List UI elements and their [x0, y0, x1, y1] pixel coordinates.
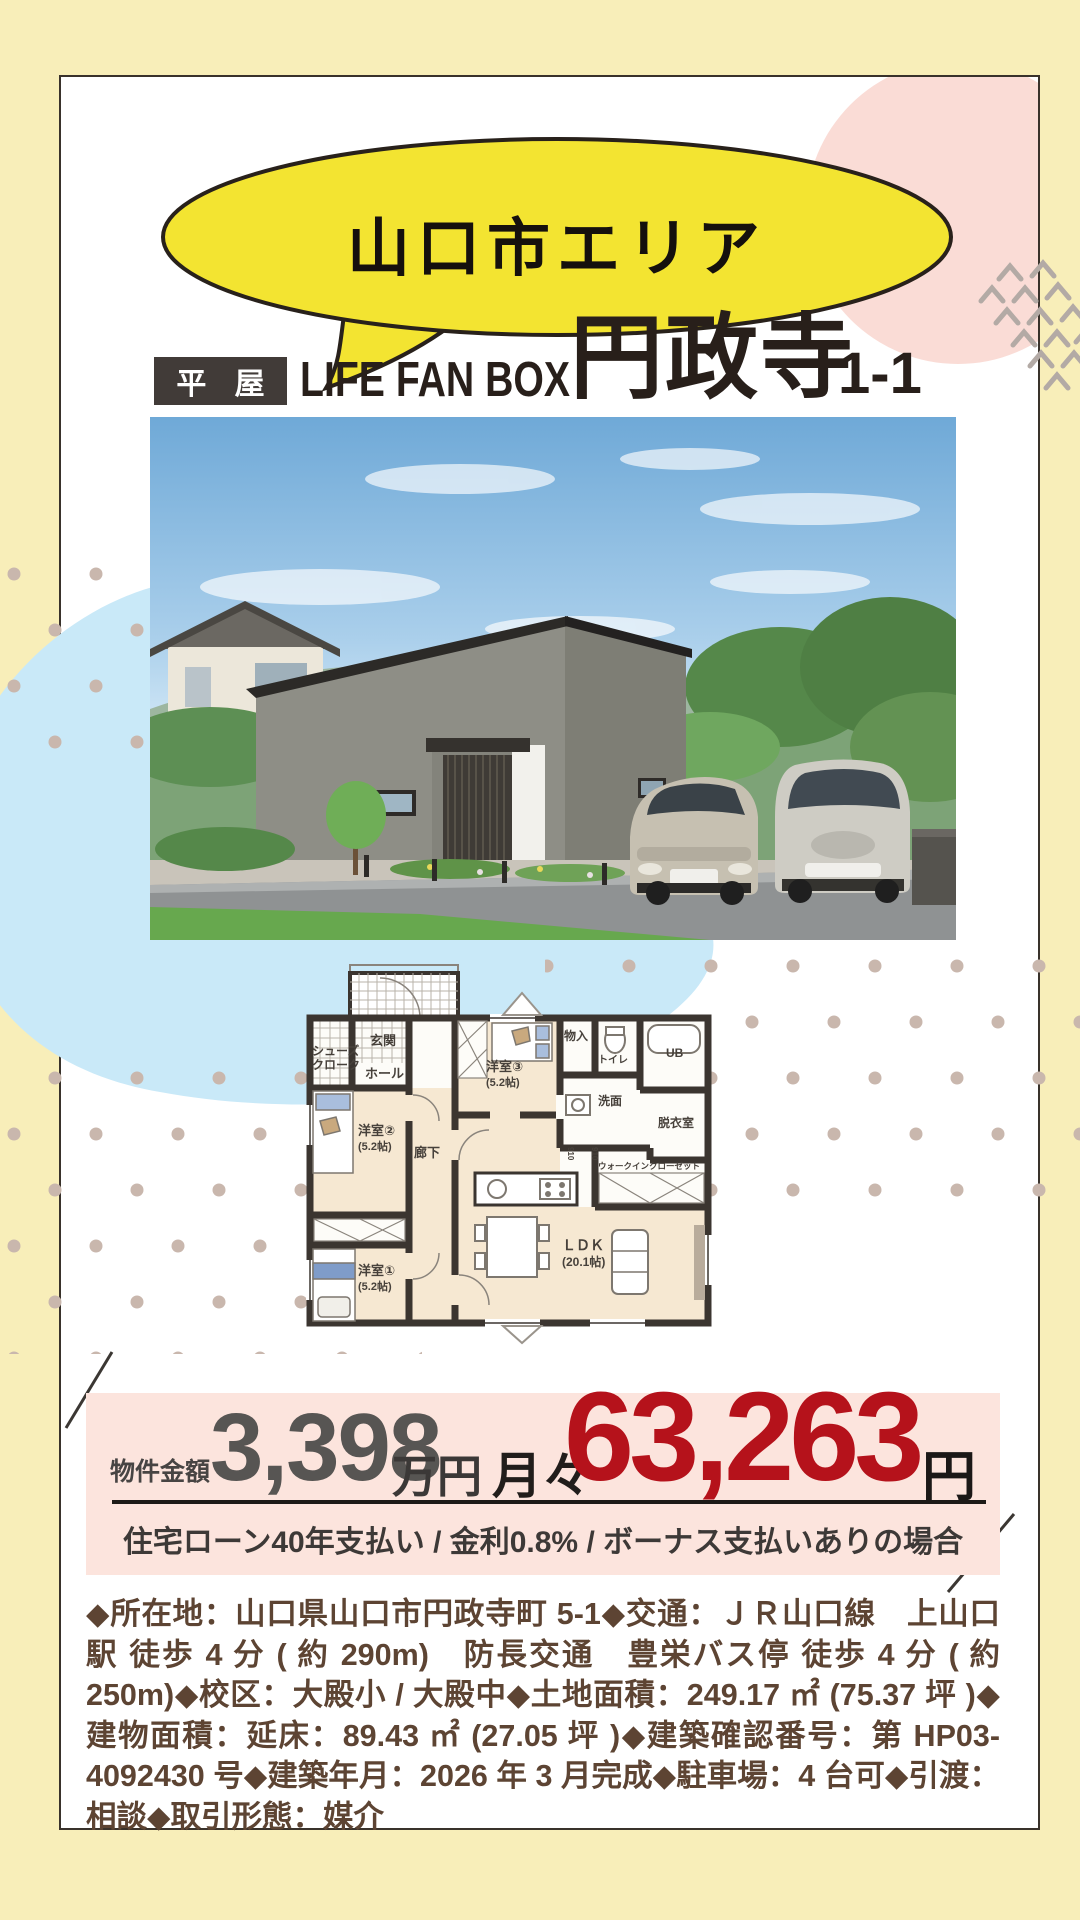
entry-canopy	[426, 738, 530, 752]
label-hall: ホール	[365, 1066, 404, 1081]
property-details: ◆所在地：山口県山口市円政寺町 5-1◆交通：ＪＲ山口線 上山口駅 徒歩 4 分…	[86, 1594, 1000, 1837]
label-room2: 洋室②	[358, 1123, 395, 1138]
label-bath: UB	[666, 1046, 684, 1060]
label-dim-1: 910	[566, 1147, 575, 1161]
label-shoes-2: クローク	[312, 1058, 360, 1072]
boundary-wall	[912, 829, 956, 905]
label-shoes-1: シューズ	[312, 1043, 359, 1058]
price-amount-unit: 万円	[392, 1440, 482, 1505]
monthly-amount: 63,263	[564, 1374, 919, 1500]
label-corridor: 廊下	[414, 1145, 440, 1160]
label-dim-2: 910	[590, 1147, 599, 1161]
label-room2-size: (5.2帖)	[358, 1139, 392, 1153]
label-ldk: ＬＤＫ	[562, 1237, 604, 1253]
exterior-photo	[150, 417, 956, 940]
hiraya-badge: 平 屋	[154, 357, 287, 405]
label-genkan: 玄関	[370, 1033, 396, 1048]
label-room3-size: (5.2帖)	[486, 1075, 520, 1089]
price-underline	[112, 1500, 986, 1504]
label-datsui: 脱衣室	[658, 1115, 694, 1130]
suv-car	[630, 777, 758, 905]
label-senmen: 洗面	[598, 1093, 622, 1108]
area-bubble-label: 山口市エリア	[162, 198, 952, 289]
flyer-page: 山口市エリア 平 屋 LIFE FAN BOX 円政寺 1-1	[0, 0, 1080, 1920]
brand-name: LIFE FAN BOX	[300, 352, 570, 408]
label-storage: 物入	[564, 1028, 588, 1043]
loan-note: 住宅ローン40年支払い / 金利0.8% / ボーナス支払いありの場合	[86, 1517, 1000, 1561]
kitchen-counter	[475, 1173, 577, 1205]
dining-set	[475, 1217, 549, 1277]
label-wic: ウォークインクローゼット	[598, 1161, 700, 1171]
property-name: 円政寺	[570, 312, 855, 405]
price-label: 物件金額	[110, 1452, 210, 1488]
label-room1-size: (5.2帖)	[358, 1279, 392, 1293]
label-room1: 洋室①	[358, 1263, 395, 1278]
label-toilet: トイレ	[598, 1054, 628, 1066]
lot-number: 1-1	[838, 345, 922, 403]
floor-plan: シューズ クローク 玄関 ホール 洋室③ (5.2帖) 物入 トイレ UB 洗面…	[290, 945, 725, 1345]
minivan-car	[775, 759, 910, 903]
entrance-porch	[350, 965, 458, 1018]
label-ldk-size: (20.1帖)	[562, 1254, 605, 1269]
label-room3: 洋室③	[486, 1059, 523, 1074]
dot-pattern-top-left	[0, 538, 162, 762]
